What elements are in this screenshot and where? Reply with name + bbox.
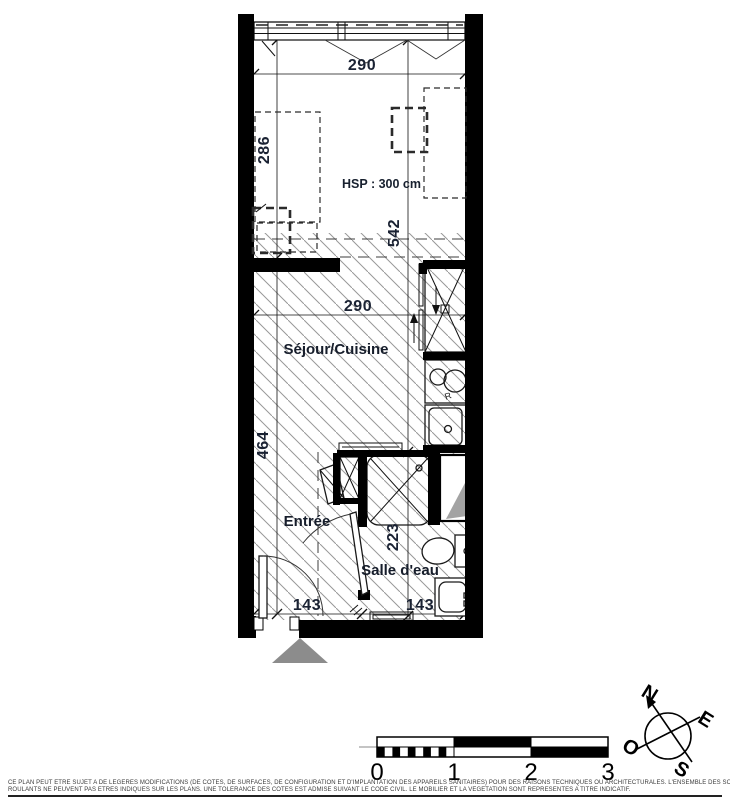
label-entree: Entrée bbox=[284, 513, 331, 530]
dim-entry-width: 143 bbox=[293, 597, 321, 614]
door-jamb bbox=[290, 617, 299, 630]
label-hsp: HSP : 300 cm bbox=[342, 177, 421, 191]
door-jamb bbox=[254, 617, 263, 630]
dim-bath-depth: 223 bbox=[385, 523, 402, 551]
dim-top-width: 290 bbox=[348, 57, 376, 74]
label-salle-deau: Salle d'eau bbox=[361, 562, 439, 579]
disclaimer-line-2: ROULANTS NE PEUVENT PAS ETRES INDIQUES S… bbox=[8, 787, 631, 793]
dim-total-depth: 542 bbox=[386, 219, 403, 247]
dim-upper-room-depth: 286 bbox=[256, 136, 273, 164]
label-sejour-cuisine: Séjour/Cuisine bbox=[283, 341, 388, 358]
disclaimer-line-1: CE PLAN PEUT ETRE SUJET A DE LEGERES MOD… bbox=[8, 779, 730, 786]
floor-plan: R bbox=[0, 0, 730, 800]
dim-living-width: 290 bbox=[344, 298, 372, 315]
dim-bath-width: 143 bbox=[406, 597, 434, 614]
dim-lower-depth: 464 bbox=[255, 431, 272, 459]
